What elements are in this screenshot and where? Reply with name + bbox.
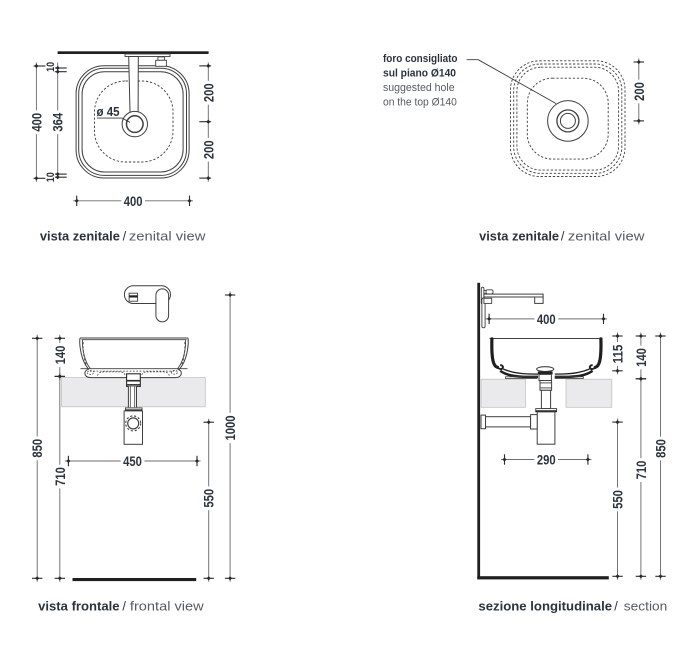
svg-text:290: 290 <box>537 453 556 469</box>
svg-text:400: 400 <box>124 194 143 210</box>
svg-text:400: 400 <box>29 113 45 132</box>
svg-text:850: 850 <box>30 439 46 458</box>
svg-text:200: 200 <box>201 140 217 159</box>
svg-text:on the top Ø140: on the top Ø140 <box>383 97 457 109</box>
svg-text:sezione longitudinale: sezione longitudinale <box>478 598 612 613</box>
svg-text:vista zenitale: vista zenitale <box>479 229 559 244</box>
svg-text:710: 710 <box>634 461 650 480</box>
svg-text:section: section <box>624 598 668 613</box>
svg-text:10: 10 <box>45 62 57 72</box>
svg-text:710: 710 <box>53 467 69 486</box>
svg-text:/: / <box>614 598 618 613</box>
svg-text:140: 140 <box>634 348 650 367</box>
svg-text:850: 850 <box>654 439 670 458</box>
svg-text:sul piano Ø140: sul piano Ø140 <box>383 68 456 80</box>
svg-text:vista zenitale: vista zenitale <box>40 229 120 244</box>
svg-text:suggested hole: suggested hole <box>383 82 455 94</box>
svg-text:550: 550 <box>202 489 218 508</box>
svg-text:200: 200 <box>632 82 648 101</box>
svg-text:frontal view: frontal view <box>130 598 205 613</box>
svg-text:zenital view: zenital view <box>129 229 206 244</box>
svg-text:364: 364 <box>51 113 67 132</box>
svg-text:550: 550 <box>611 490 627 509</box>
svg-text:115: 115 <box>611 345 627 364</box>
svg-text:ø 45: ø 45 <box>97 105 120 119</box>
svg-text:foro consigliato: foro consigliato <box>383 53 458 65</box>
svg-text:/: / <box>122 598 126 613</box>
svg-text:10: 10 <box>45 172 57 182</box>
svg-text:400: 400 <box>537 312 556 328</box>
svg-text:450: 450 <box>123 454 142 470</box>
svg-text:/: / <box>561 229 565 244</box>
svg-text:200: 200 <box>201 83 217 102</box>
svg-text:/: / <box>123 229 127 244</box>
svg-text:140: 140 <box>53 346 69 365</box>
svg-text:1000: 1000 <box>223 415 239 440</box>
svg-text:vista frontale: vista frontale <box>38 598 120 613</box>
svg-text:zenital view: zenital view <box>568 229 645 244</box>
